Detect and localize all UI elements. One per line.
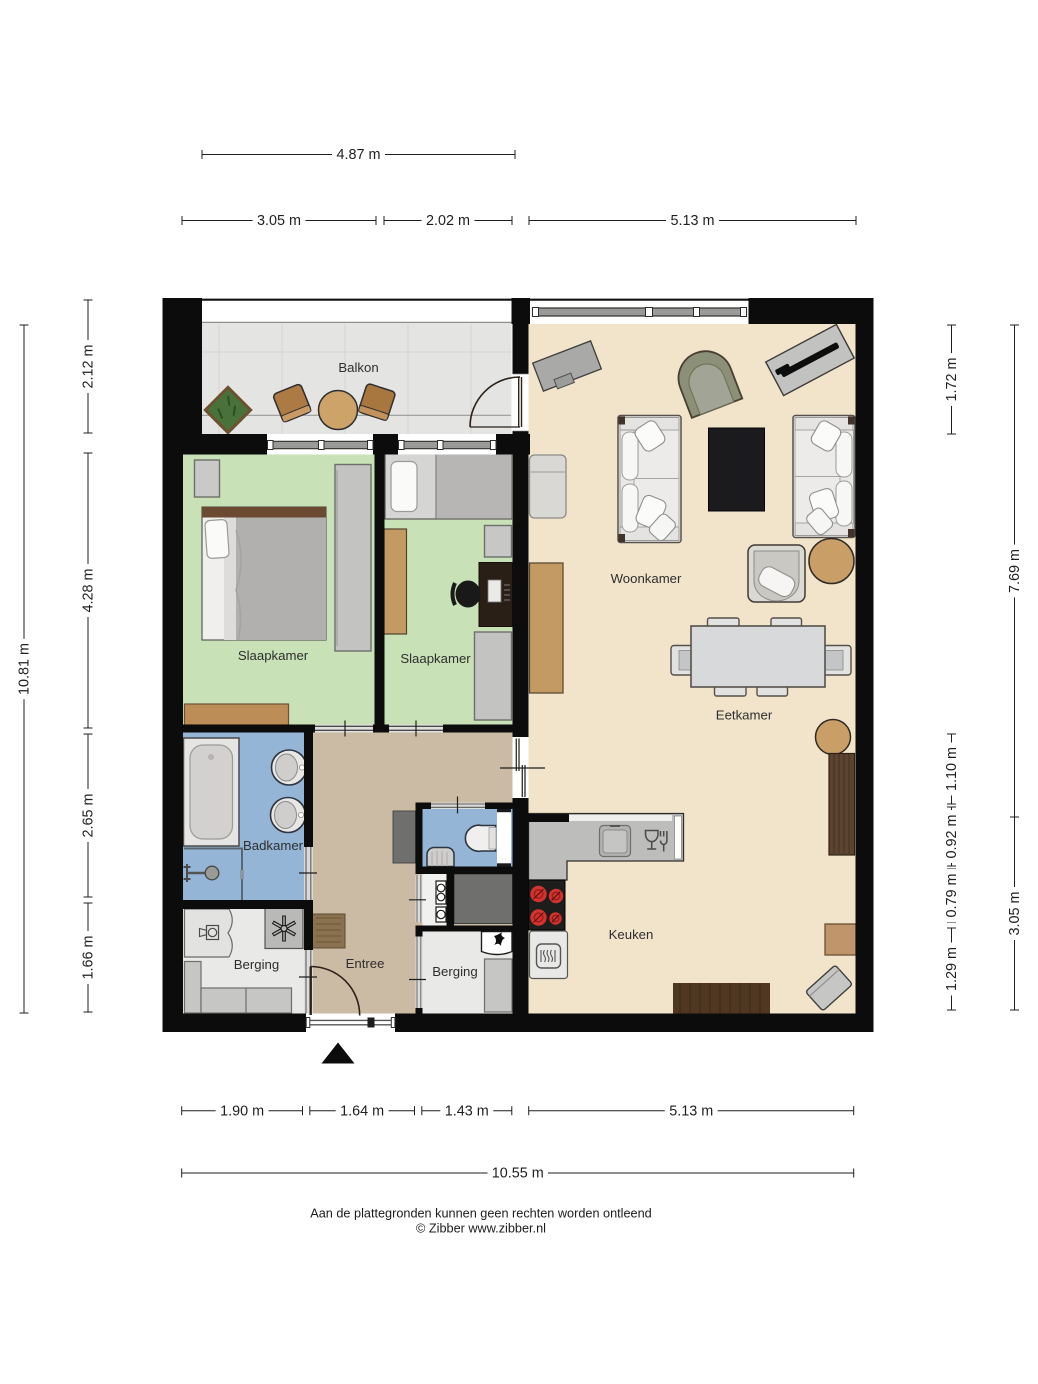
svg-text:5.13 m: 5.13 m xyxy=(669,1103,713,1119)
svg-text:7.69 m: 7.69 m xyxy=(1007,549,1023,593)
svg-text:Slaapkamer: Slaapkamer xyxy=(238,648,309,663)
svg-text:1.64 m: 1.64 m xyxy=(340,1103,384,1119)
svg-text:2.12 m: 2.12 m xyxy=(81,344,97,388)
svg-text:10.81 m: 10.81 m xyxy=(17,643,33,695)
svg-text:4.28 m: 4.28 m xyxy=(81,568,97,612)
svg-text:Berging: Berging xyxy=(234,957,279,972)
svg-text:Woonkamer: Woonkamer xyxy=(611,571,682,586)
svg-text:Keuken: Keuken xyxy=(609,927,654,942)
svg-text:© Zibber www.zibber.nl: © Zibber www.zibber.nl xyxy=(416,1222,546,1236)
svg-text:Entree: Entree xyxy=(346,956,385,971)
svg-text:1.10 m: 1.10 m xyxy=(944,747,960,791)
svg-text:0.79 m: 0.79 m xyxy=(944,873,960,917)
svg-text:5.13 m: 5.13 m xyxy=(671,213,715,229)
svg-text:3.05 m: 3.05 m xyxy=(1007,891,1023,935)
svg-text:10.55 m: 10.55 m xyxy=(492,1166,544,1182)
svg-text:1.29 m: 1.29 m xyxy=(944,947,960,991)
svg-text:1.90 m: 1.90 m xyxy=(220,1103,264,1119)
svg-text:2.65 m: 2.65 m xyxy=(81,793,97,837)
svg-text:Slaapkamer: Slaapkamer xyxy=(400,651,471,666)
svg-text:Badkamer: Badkamer xyxy=(243,838,304,853)
svg-text:4.87 m: 4.87 m xyxy=(337,147,381,163)
svg-text:Eetkamer: Eetkamer xyxy=(716,707,773,722)
svg-text:Berging: Berging xyxy=(432,964,477,979)
svg-text:1.66 m: 1.66 m xyxy=(81,935,97,979)
svg-text:2.02 m: 2.02 m xyxy=(426,213,470,229)
svg-text:1.72 m: 1.72 m xyxy=(944,357,960,401)
svg-text:1.43 m: 1.43 m xyxy=(445,1103,489,1119)
svg-text:0.92 m: 0.92 m xyxy=(944,814,960,858)
svg-text:3.05 m: 3.05 m xyxy=(257,213,301,229)
svg-text:Aan de plattegronden kunnen ge: Aan de plattegronden kunnen geen rechten… xyxy=(310,1207,651,1221)
svg-text:Balkon: Balkon xyxy=(338,360,378,375)
